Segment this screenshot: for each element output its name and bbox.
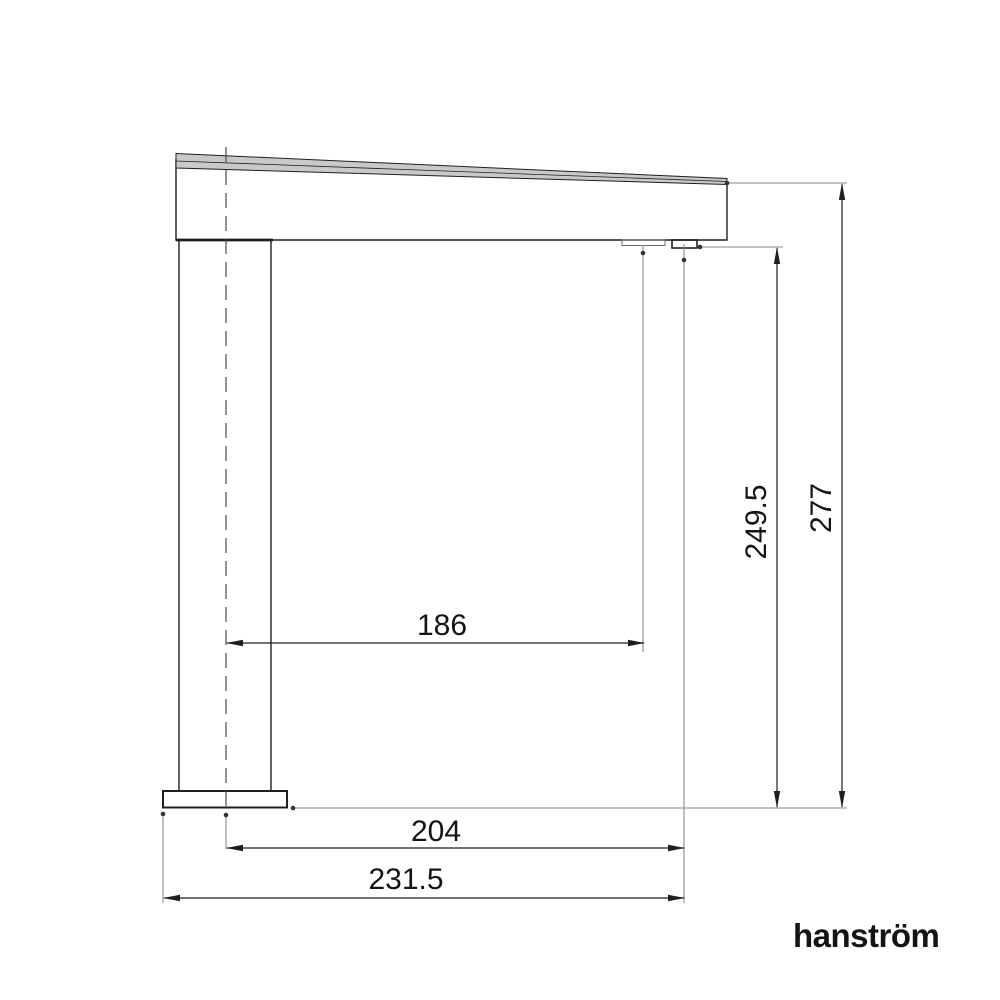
arrow-overall-height-bottom: [839, 791, 845, 808]
dot-spout-tip: [725, 181, 730, 186]
brand-logo: hanström: [793, 917, 939, 954]
dot-base-center: [224, 813, 229, 818]
arrow-outlet-height-top: [774, 247, 780, 264]
arrow-overall-projection-right: [668, 895, 685, 901]
label-spout-projection: 204: [411, 815, 461, 848]
dot-slot-center: [641, 251, 646, 256]
arrow-overall-projection-left: [163, 895, 180, 901]
dot-base-left: [161, 812, 166, 817]
dot-aerator-center: [682, 258, 687, 263]
label-overall-projection: 231.5: [368, 863, 443, 896]
arrow-outlet-height-bottom: [774, 791, 780, 808]
base-flange: [163, 791, 287, 808]
drawing-canvas: 186 204 231.5 249.5 277 hanström: [0, 0, 1000, 1000]
attachment-dots: [161, 181, 730, 818]
arrow-spout-projection-right: [668, 845, 685, 851]
arrow-spout-reach-left: [226, 640, 243, 646]
dot-base-right: [291, 806, 296, 811]
arrow-spout-projection-left: [226, 845, 243, 851]
tap-dimension-drawing: 186 204 231.5 249.5 277 hanström: [0, 0, 1000, 1000]
label-outlet-height: 249.5: [740, 484, 773, 559]
spout-underside-slot: [622, 240, 665, 246]
label-overall-height: 277: [805, 483, 838, 533]
arrow-overall-height-top: [839, 183, 845, 200]
label-spout-reach: 186: [417, 609, 467, 642]
dot-aerator-right: [698, 245, 703, 250]
